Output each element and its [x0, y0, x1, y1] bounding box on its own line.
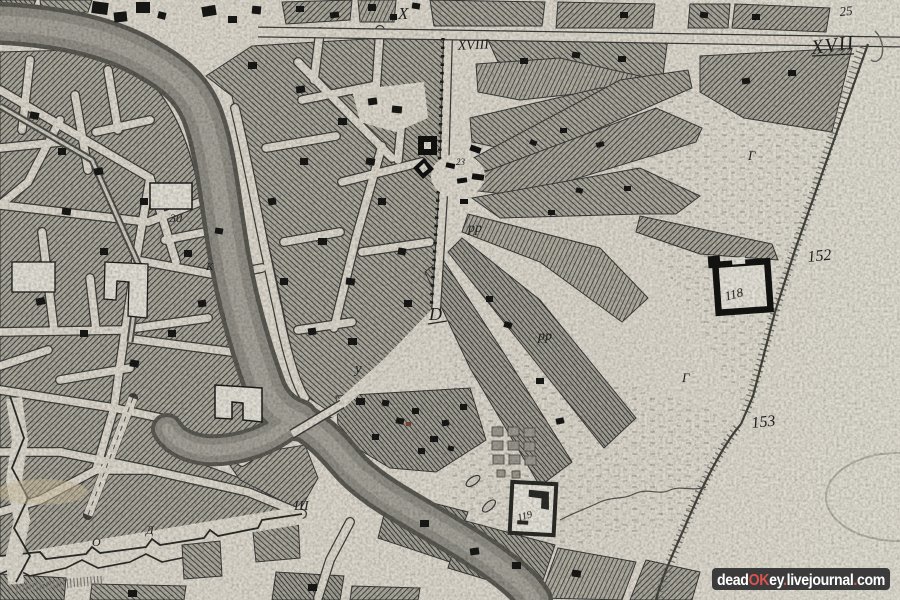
svg-text:deadOKey.livejournal.com: deadOKey.livejournal.com [717, 572, 885, 589]
